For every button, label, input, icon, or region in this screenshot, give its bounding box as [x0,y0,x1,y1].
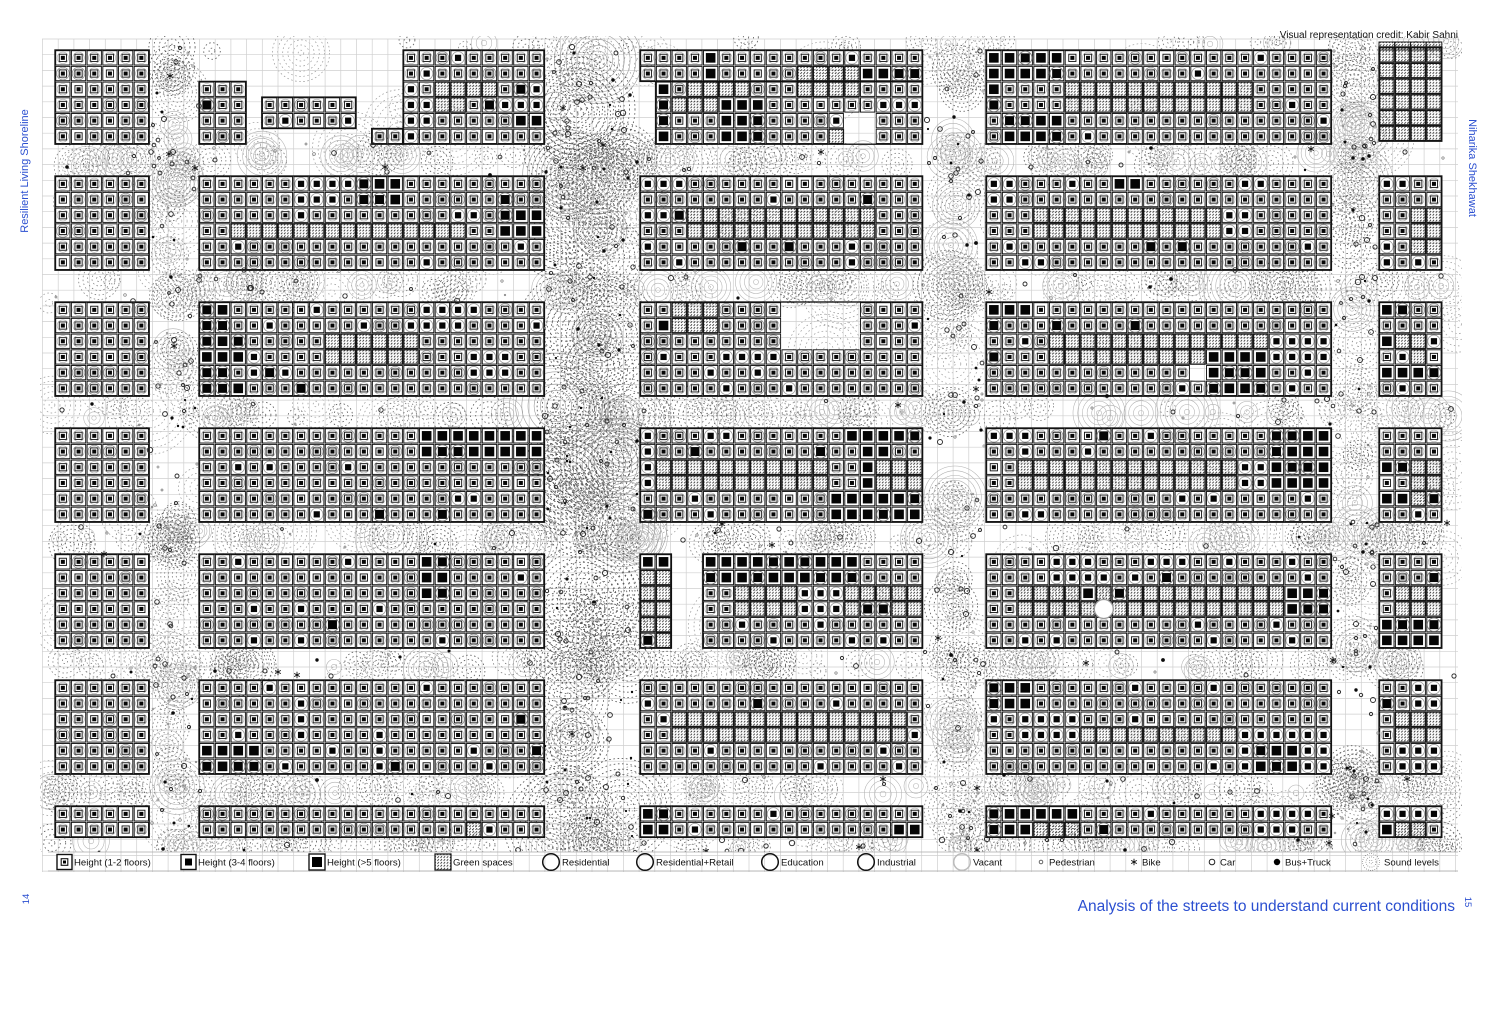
svg-text:Sound levels: Sound levels [1384,857,1439,868]
svg-text:Residential: Residential [562,857,609,868]
svg-text:Analysis of the streets to und: Analysis of the streets to understand cu… [1078,898,1456,915]
svg-text:Bus+Truck: Bus+Truck [1285,857,1331,868]
svg-text:Vacant: Vacant [973,857,1002,868]
svg-text:Height (1-2 floors): Height (1-2 floors) [74,857,151,868]
svg-text:15: 15 [1462,897,1473,908]
svg-text:Pedestrian: Pedestrian [1049,857,1095,868]
svg-text:Education: Education [781,857,824,868]
svg-text:Niharika Shekhawat: Niharika Shekhawat [1466,119,1478,217]
svg-text:Visual representation credit:: Visual representation credit: Kabir Sahn… [1280,30,1458,41]
svg-text:Height (3-4 floors): Height (3-4 floors) [198,857,275,868]
svg-text:Residential+Retail: Residential+Retail [656,857,734,868]
svg-text:Green spaces: Green spaces [453,857,513,868]
svg-text:Bike: Bike [1142,857,1161,868]
svg-text:14: 14 [21,894,32,905]
svg-text:Car: Car [1220,857,1236,868]
svg-text:Height (>5 floors): Height (>5 floors) [327,857,401,868]
svg-text:Industrial: Industrial [877,857,916,868]
svg-text:Resilient Living Shoreline: Resilient Living Shoreline [19,109,31,233]
